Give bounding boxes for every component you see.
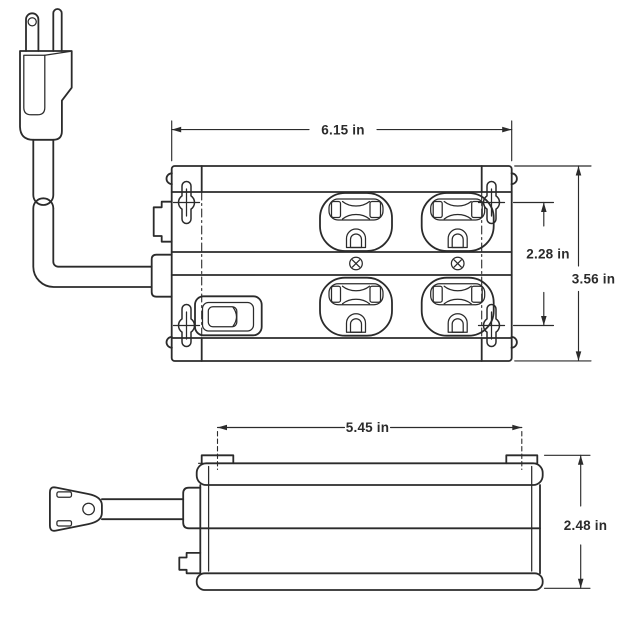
- cord-upper-segment: [33, 140, 53, 205]
- switch-rocker-curve: [233, 307, 237, 326]
- screw-left: [350, 257, 363, 270]
- arrowhead-right: [512, 425, 522, 431]
- strip-body-side-view: [179, 455, 542, 590]
- power-cord-side: [102, 499, 183, 519]
- dimension-label-width: 6.15 in: [321, 122, 364, 137]
- dimension-label-mount-slot-span: 2.28 in: [526, 246, 569, 261]
- plug-face-detail: [24, 55, 45, 115]
- screw-right: [451, 257, 464, 270]
- top-view: 6.15 in 2.28 in 3.56 in: [20, 9, 615, 361]
- arrowhead-down: [578, 579, 584, 589]
- keyhole-slot-top-left: [174, 182, 200, 224]
- plug-side-view: [20, 9, 72, 140]
- blade-slot-bottom: [57, 521, 72, 526]
- dimension-label-depth: 3.56 in: [572, 271, 615, 286]
- dimension-width: 6.15 in: [172, 121, 512, 161]
- arrowhead-down: [576, 351, 582, 361]
- arrowhead-down: [541, 316, 547, 326]
- switch-rocker: [208, 307, 237, 327]
- cord-lower-segment-outer: [33, 198, 151, 287]
- blade-slot-top: [57, 492, 72, 497]
- plug-body: [20, 51, 72, 140]
- plug-blade-hole: [28, 18, 36, 26]
- power-cord: [33, 140, 151, 287]
- arrowhead-right: [502, 127, 512, 133]
- dimension-depth: 3.56 in: [515, 166, 616, 361]
- cord-strain-relief-boss: [152, 255, 172, 297]
- dimension-label-height: 2.48 in: [564, 518, 607, 533]
- ground-pin-hole: [83, 503, 95, 515]
- arrowhead-up: [578, 455, 584, 465]
- arrowhead-up: [576, 166, 582, 176]
- plug-chamfer-line: [45, 51, 71, 55]
- dimension-mount-tab-span: 5.45 in: [218, 420, 522, 470]
- side-view: 5.45 in 2.48 in: [50, 420, 607, 590]
- plug-blade-right: [53, 9, 61, 51]
- dimension-mount-slot-span: 2.28 in: [514, 203, 570, 326]
- plug-blade-left: [26, 13, 38, 51]
- cord-boss-side: [183, 488, 200, 529]
- dimension-height: 2.48 in: [545, 455, 608, 588]
- outlet-3: [320, 278, 392, 336]
- power-strip-dimension-drawing: 6.15 in 2.28 in 3.56 in: [0, 0, 634, 618]
- arrowhead-left: [172, 127, 182, 133]
- cord-lower-segment-inner: [53, 208, 151, 266]
- bottom-side-boss: [179, 553, 200, 573]
- top-cap: [197, 463, 543, 485]
- rocker-switch: [195, 296, 262, 335]
- product-dimension-drawing-page: 6.15 in 2.28 in 3.56 in: [0, 0, 634, 618]
- arrowhead-up: [541, 203, 547, 213]
- arrowhead-left: [218, 425, 228, 431]
- dimension-label-mount-tab-span: 5.45 in: [346, 420, 389, 435]
- side-boss-upper: [154, 202, 172, 242]
- outlet-1: [320, 193, 392, 251]
- plug-front-view: [50, 487, 102, 531]
- bottom-cap: [197, 573, 543, 590]
